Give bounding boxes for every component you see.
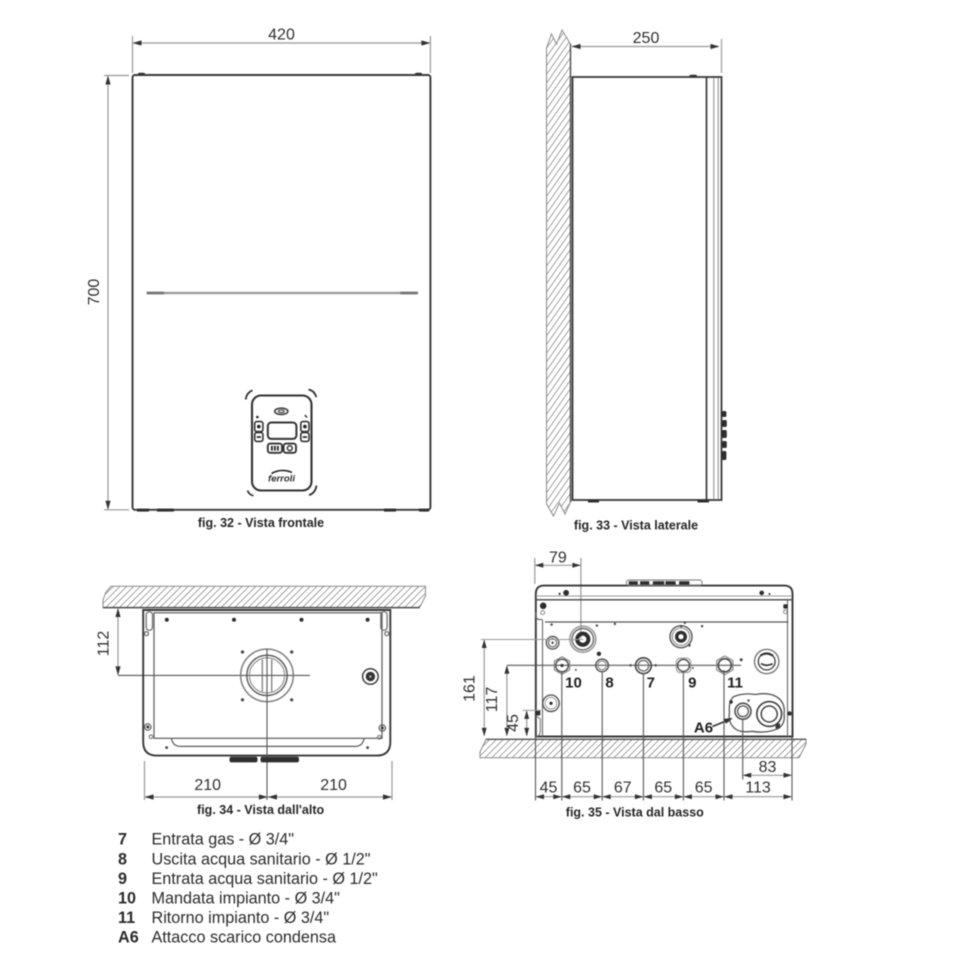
svg-text:Ritorno impianto - Ø 3/4": Ritorno impianto - Ø 3/4" bbox=[152, 909, 330, 927]
svg-text:A6: A6 bbox=[694, 720, 713, 737]
svg-text:45: 45 bbox=[505, 714, 522, 732]
svg-text:Entrata acqua sanitario - Ø 1/: Entrata acqua sanitario - Ø 1/2" bbox=[152, 870, 378, 888]
svg-text:79: 79 bbox=[549, 550, 567, 567]
svg-text:65: 65 bbox=[573, 780, 591, 797]
svg-text:113: 113 bbox=[745, 780, 771, 797]
svg-text:Attacco scarico condensa: Attacco scarico condensa bbox=[152, 929, 336, 947]
svg-text:117: 117 bbox=[484, 687, 501, 713]
svg-text:Entrata gas - Ø 3/4": Entrata gas - Ø 3/4" bbox=[152, 831, 295, 849]
svg-text:A6: A6 bbox=[118, 929, 139, 947]
svg-text:fig. 33 - Vista laterale: fig. 33 - Vista laterale bbox=[574, 519, 698, 533]
svg-text:112: 112 bbox=[96, 631, 113, 657]
svg-text:65: 65 bbox=[654, 780, 672, 797]
svg-text:700: 700 bbox=[86, 279, 103, 306]
svg-text:Uscita acqua sanitario - Ø 1/2: Uscita acqua sanitario - Ø 1/2" bbox=[152, 851, 371, 869]
svg-text:10: 10 bbox=[565, 675, 582, 692]
svg-text:420: 420 bbox=[268, 27, 295, 44]
svg-text:65: 65 bbox=[695, 780, 713, 797]
svg-text:11: 11 bbox=[118, 909, 135, 927]
svg-text:8: 8 bbox=[118, 851, 127, 869]
svg-text:ferroli: ferroli bbox=[268, 474, 295, 485]
svg-text:Mandata impianto - Ø 3/4": Mandata impianto - Ø 3/4" bbox=[152, 890, 341, 908]
svg-text:210: 210 bbox=[194, 777, 221, 794]
svg-text:7: 7 bbox=[118, 831, 127, 849]
svg-text:67: 67 bbox=[614, 780, 632, 797]
svg-text:9: 9 bbox=[688, 675, 696, 692]
svg-text:83: 83 bbox=[759, 759, 777, 776]
svg-text:10: 10 bbox=[118, 890, 136, 908]
svg-text:fig. 35 - Vista dal basso: fig. 35 - Vista dal basso bbox=[566, 806, 704, 820]
svg-text:250: 250 bbox=[633, 30, 660, 47]
svg-text:45: 45 bbox=[540, 780, 558, 797]
svg-text:8: 8 bbox=[605, 675, 613, 692]
svg-text:11: 11 bbox=[727, 675, 743, 692]
svg-text:210: 210 bbox=[320, 777, 347, 794]
svg-text:7: 7 bbox=[647, 675, 655, 692]
svg-text:161: 161 bbox=[462, 675, 479, 702]
svg-text:9: 9 bbox=[118, 870, 127, 888]
svg-text:fig. 34 - Vista dall'alto: fig. 34 - Vista dall'alto bbox=[197, 803, 324, 817]
svg-text:fig. 32 - Vista frontale: fig. 32 - Vista frontale bbox=[198, 516, 324, 530]
